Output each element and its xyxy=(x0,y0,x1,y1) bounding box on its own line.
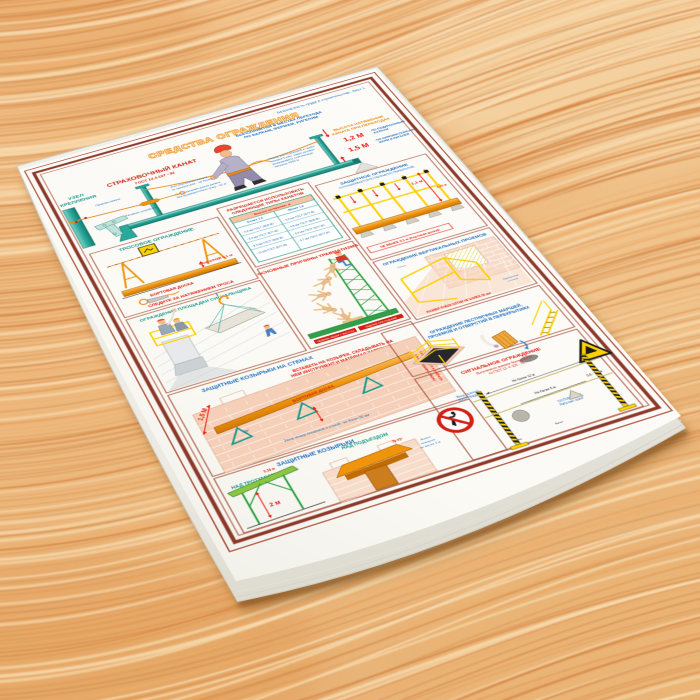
svg-text:2 м: 2 м xyxy=(268,499,282,508)
svg-text:Прижимы каната: Прижимы каната xyxy=(95,198,121,207)
svg-text:1,2 М: 1,2 М xyxy=(342,133,366,143)
svg-text:НЕ МЕНЕЕ 0,1 м (бортовая доска: НЕ МЕНЕЕ 0,1 м (бортовая доска)! xyxy=(379,228,441,249)
svg-text:Сетка: Сетка xyxy=(397,265,407,269)
svg-text:ПРОЕМОВ И ОТВЕРСТИЙ В ПЕРЕКРЫТ: ПРОЕМОВ И ОТВЕРСТИЙ В ПЕРЕКРЫТИЯХ xyxy=(427,305,532,340)
svg-text:1,1 м: 1,1 м xyxy=(410,179,424,185)
svg-text:1,5 М: 1,5 М xyxy=(347,142,371,153)
svg-text:Канат: Канат xyxy=(555,421,564,425)
svg-text:70-75°: 70-75° xyxy=(391,438,404,444)
